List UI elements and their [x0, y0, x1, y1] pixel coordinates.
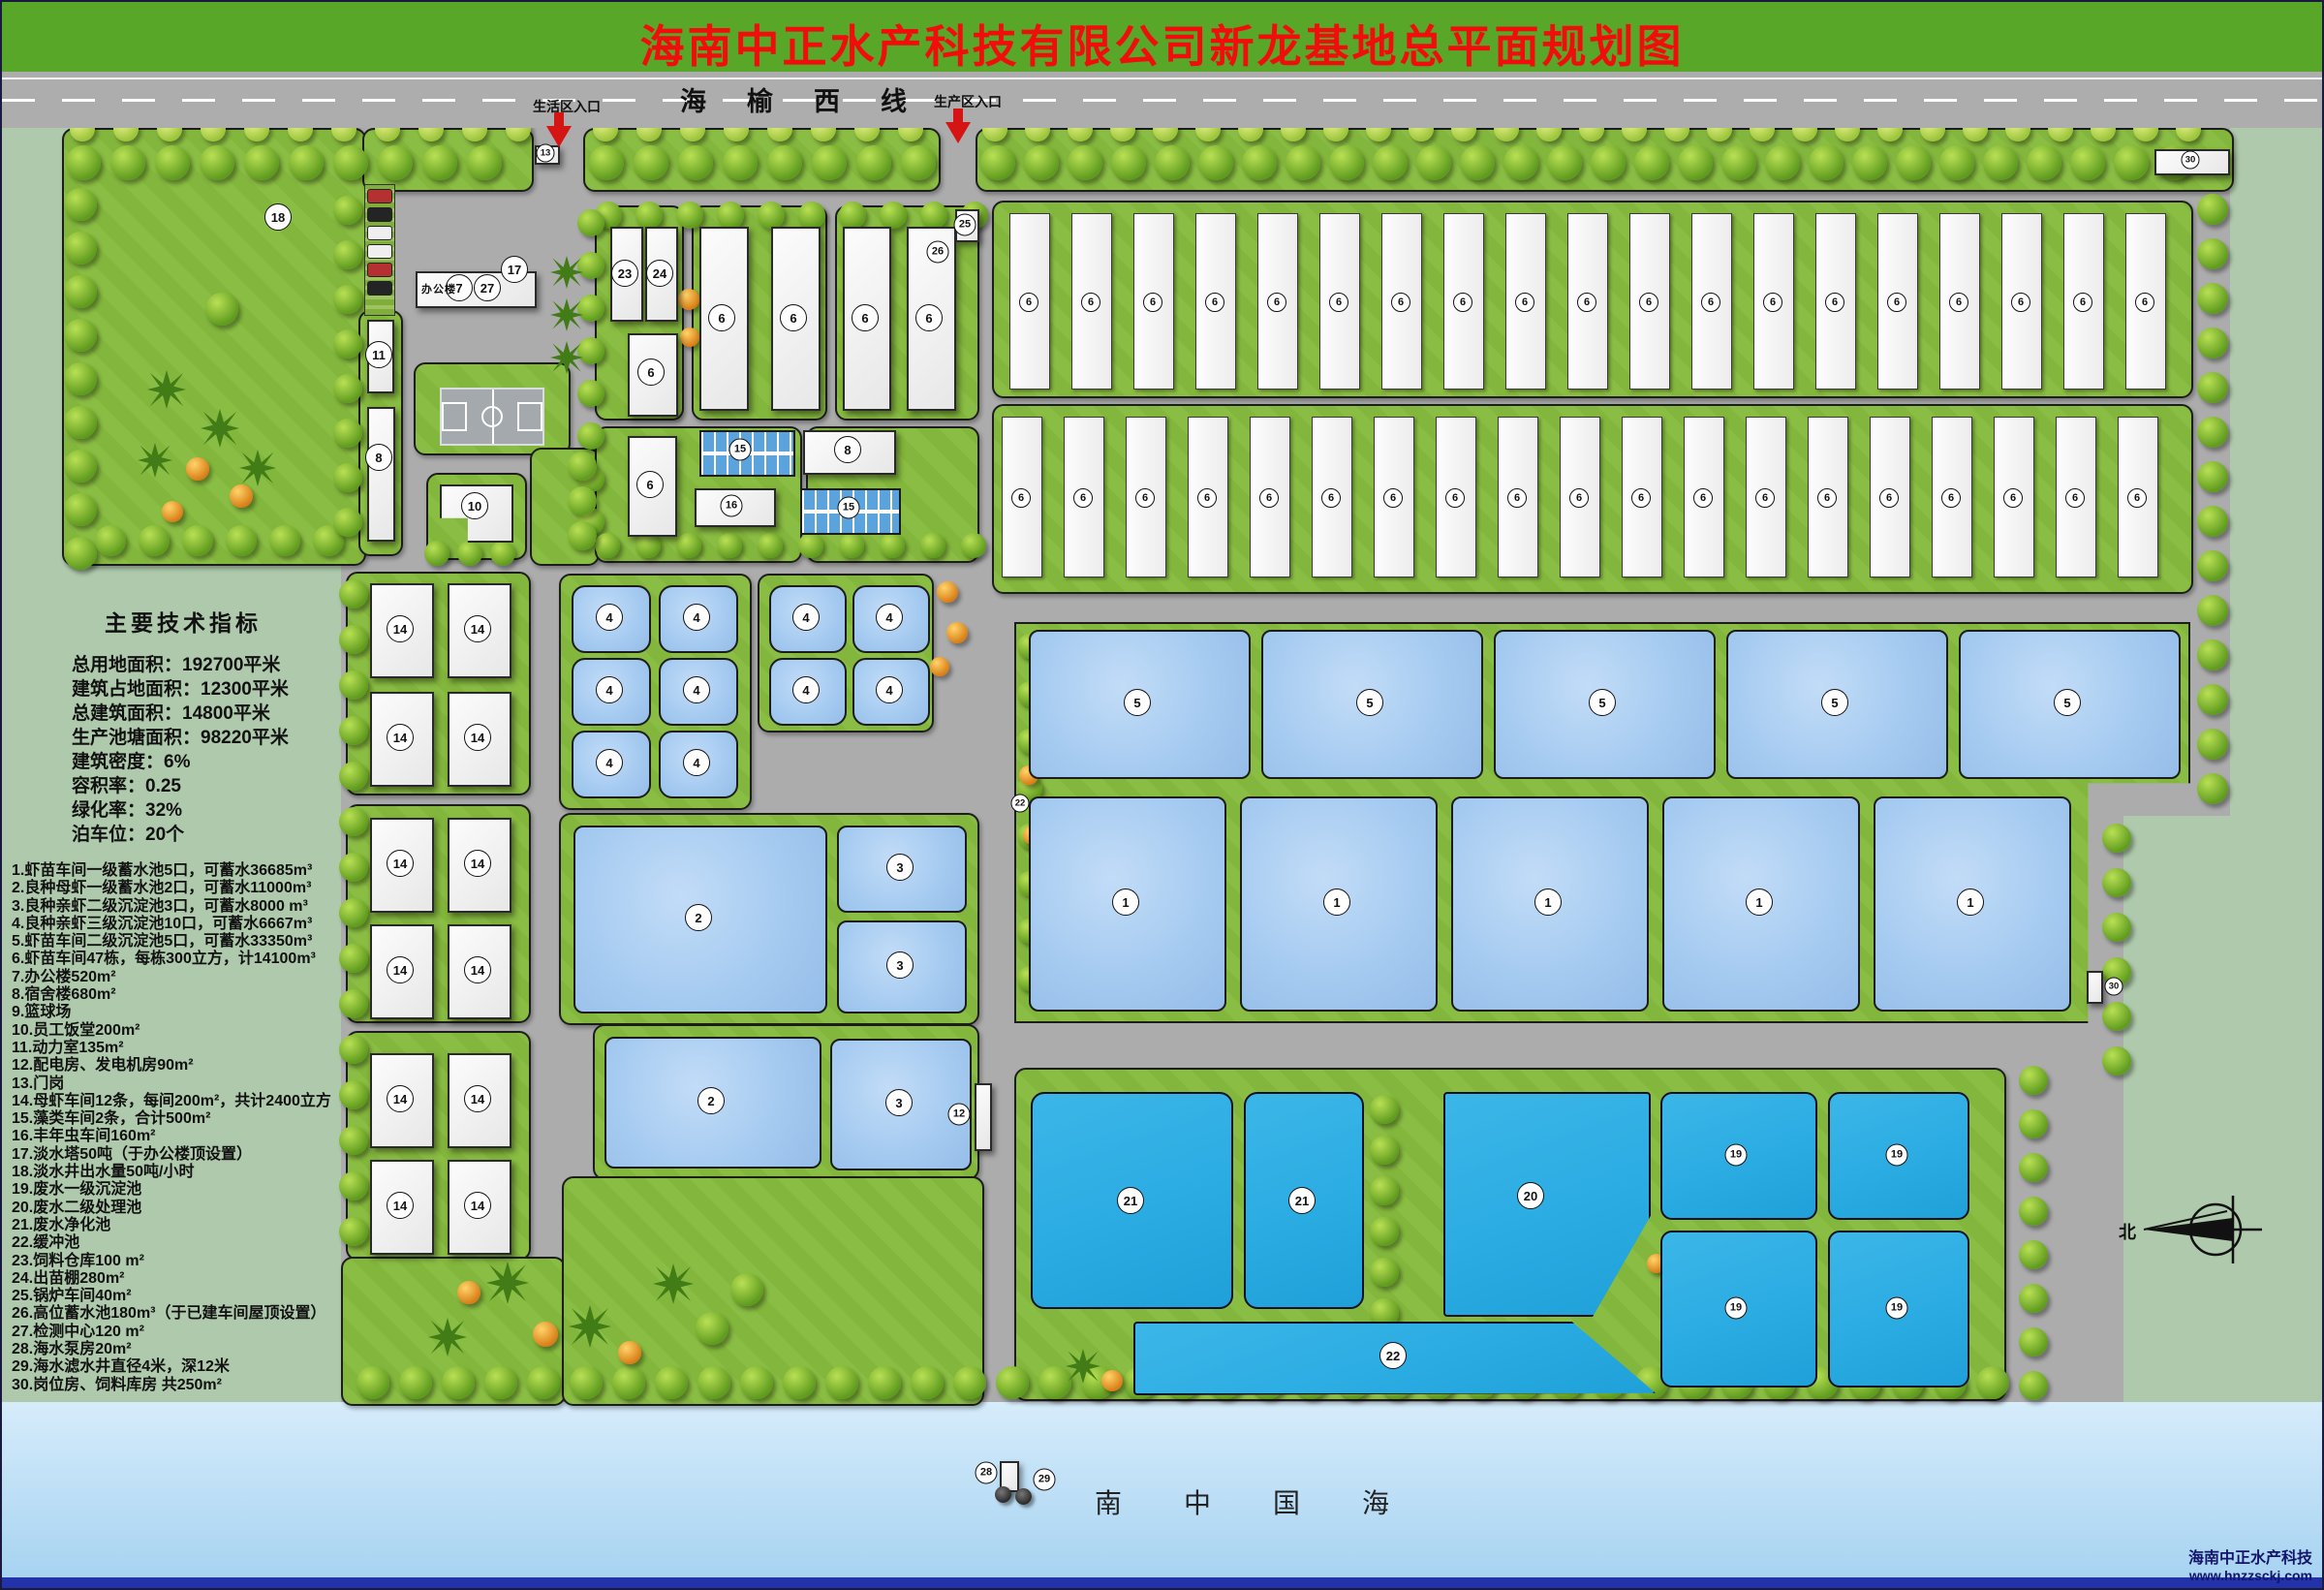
tech-indicator-line: 泊车位：20个 [72, 823, 362, 847]
entrance-arrow-life [546, 126, 572, 147]
legend-item: 2.良种母虾一级蓄水池2口，可蓄水11000m³ [12, 880, 346, 897]
tree-icon [1983, 145, 2018, 180]
map-label: 6 [1887, 293, 1906, 312]
tree-icon [1111, 145, 1146, 180]
tree-icon [758, 202, 785, 229]
parked-car-icon [367, 281, 392, 296]
site-plan: 南中国海 66666666666666666666666666666666666… [0, 0, 2324, 1590]
map-label: 26 [927, 241, 949, 264]
tree-icon [442, 1366, 475, 1399]
building [2087, 971, 2103, 1004]
map-label: 6 [1267, 293, 1286, 312]
green-block [62, 128, 366, 566]
technical-indicators-title: 主要技术指标 [105, 605, 362, 638]
map-label: 15 [838, 497, 860, 519]
tree-icon [697, 1366, 730, 1399]
tree-icon [880, 202, 907, 229]
tree-icon [244, 145, 279, 180]
map-label: 4 [683, 749, 710, 776]
map-label: 6 [1817, 488, 1837, 508]
map-label: 6 [2135, 293, 2154, 312]
tree-icon [2197, 595, 2228, 626]
tree-icon [333, 374, 362, 403]
legend-item: 27.检测中心120 m² [12, 1324, 346, 1341]
tree-icon [798, 202, 825, 229]
office-building-label: 办公楼 [421, 281, 456, 296]
tree-icon [64, 232, 97, 265]
palm-tree-icon [653, 1263, 694, 1304]
legend-item: 24.出苗棚280m² [12, 1270, 346, 1288]
entrance-arrow-production [945, 122, 971, 143]
tech-indicator-line: 容积率：0.25 [72, 774, 362, 798]
legend-item: 15.藻类车间2条，合计500m² [12, 1110, 346, 1128]
tree-icon [2197, 327, 2228, 359]
tree-icon [378, 145, 413, 180]
tree-icon [1721, 145, 1756, 180]
legend-item: 17.淡水塔50吨（于办公楼顶设置） [12, 1146, 346, 1164]
tree-icon [1024, 145, 1059, 180]
tree-icon [2070, 145, 2105, 180]
orange-tree-icon [930, 657, 949, 676]
tree-icon [2019, 1371, 2048, 1400]
tree-icon [839, 202, 866, 229]
tree-icon [996, 1366, 1029, 1399]
tree-icon [2019, 1284, 2048, 1313]
legend-item: 7.办公楼520m² [12, 969, 346, 986]
tree-icon [182, 525, 213, 556]
tree-icon [767, 145, 802, 180]
tree-icon [1373, 145, 1408, 180]
tree-icon [655, 1366, 688, 1399]
seawater-well-icon [1015, 1488, 1032, 1505]
tree-icon [333, 240, 362, 269]
tech-indicator-line: 总建筑面积：14800平米 [72, 701, 362, 726]
court-center-circle [481, 406, 503, 427]
tree-icon [2197, 283, 2228, 314]
tree-icon [568, 452, 597, 481]
map-label: 14 [387, 615, 414, 642]
tree-icon [1634, 145, 1669, 180]
palm-tree-icon [428, 1318, 467, 1356]
map-label: 6 [708, 304, 735, 331]
bush-tree-icon [205, 293, 238, 326]
basketball-court [440, 388, 544, 446]
tree-icon [95, 525, 126, 556]
entrance-arrow-life-stem [554, 112, 564, 126]
map-label: 14 [464, 850, 491, 877]
tree-icon [110, 145, 145, 180]
map-label: 5 [1821, 689, 1848, 716]
legend-item: 11.动力室135m² [12, 1040, 346, 1057]
tree-icon [1852, 145, 1887, 180]
map-label: 3 [886, 854, 914, 881]
orange-tree-icon [186, 457, 209, 481]
map-label: 3 [885, 1089, 913, 1116]
map-label: 21 [1117, 1187, 1144, 1214]
tree-icon [64, 319, 97, 352]
tree-icon [1370, 1176, 1399, 1205]
tree-icon [1896, 145, 1931, 180]
palm-tree-icon [239, 450, 276, 486]
map-label: 29 [1034, 1469, 1056, 1491]
map-label: 30 [2105, 978, 2123, 996]
legend-item: 6.虾苗车间47栋，每栋300立方，计14100m³ [12, 951, 346, 968]
tree-icon [2197, 372, 2228, 403]
map-label: 3 [886, 951, 914, 979]
map-label: 27 [474, 274, 501, 301]
legend-item: 25.锅炉车间40m² [12, 1288, 346, 1305]
tree-icon [155, 145, 190, 180]
tree-icon [64, 450, 97, 483]
tree-icon [577, 295, 604, 322]
map-label: 6 [2065, 488, 2085, 508]
tree-icon [1242, 145, 1277, 180]
tree-icon [64, 275, 97, 308]
map-label: 6 [1019, 293, 1038, 312]
palm-tree-icon [550, 341, 583, 374]
map-label: 6 [915, 304, 943, 331]
palm-tree-icon [550, 256, 583, 289]
tree-icon [920, 533, 945, 558]
tree-icon [2197, 773, 2228, 804]
parked-car-icon [367, 263, 392, 277]
map-label: 6 [636, 471, 664, 498]
map-label: 11 [365, 341, 392, 368]
watermark: 海南中正水产科技 www.hnzzsckj.com [2188, 1544, 2312, 1583]
map-label: 1 [1323, 889, 1350, 916]
palm-tree-icon [486, 1262, 529, 1304]
tree-icon [1976, 1366, 2009, 1399]
technical-indicator-lines: 总用地面积：192700平米建筑占地面积：12300平米总建筑面积：14800平… [72, 653, 362, 847]
tree-icon [333, 145, 368, 180]
entrance-arrow-production-stem [953, 109, 963, 122]
tree-icon [577, 380, 604, 407]
tree-icon [723, 145, 758, 180]
tree-icon [1068, 145, 1102, 180]
tree-icon [635, 202, 663, 229]
tree-icon [2197, 550, 2228, 581]
map-label: 6 [1507, 488, 1527, 508]
map-label: 6 [1515, 293, 1534, 312]
tech-indicator-line: 总用地面积：192700平米 [72, 653, 362, 677]
legend-item: 5.虾苗车间二级沉淀池5口，可蓄水33350m³ [12, 933, 346, 951]
tree-icon [783, 1366, 816, 1399]
map-label: 6 [1693, 488, 1713, 508]
tree-icon [333, 419, 362, 448]
tree-icon [980, 145, 1015, 180]
tree-icon [589, 145, 624, 180]
highway-name: 海榆西线 [680, 80, 947, 118]
tree-icon [920, 202, 947, 229]
tree-icon [911, 1366, 944, 1399]
map-label: 6 [1763, 293, 1782, 312]
tree-icon [2019, 1240, 2048, 1269]
orange-tree-icon [162, 501, 183, 522]
map-label: 6 [637, 359, 665, 386]
tree-icon [2197, 461, 2228, 492]
map-label: 2 [697, 1087, 725, 1114]
tree-icon [424, 541, 449, 566]
tree-icon [1678, 145, 1713, 180]
orange-tree-icon [230, 484, 253, 508]
map-label: 8 [365, 444, 392, 471]
tree-icon [798, 533, 823, 558]
tree-icon [2197, 729, 2228, 760]
tree-icon [812, 145, 847, 180]
tree-icon [676, 533, 701, 558]
legend-item: 29.海水滤水井直径4米，深12米 [12, 1358, 346, 1376]
palm-tree-icon [569, 1305, 611, 1348]
tree-icon [2019, 1327, 2048, 1356]
map-label: 12 [948, 1104, 971, 1126]
tree-icon [1155, 145, 1190, 180]
tech-indicator-line: 生产池塘面积：98220平米 [72, 726, 362, 750]
tree-icon [676, 202, 703, 229]
tree-icon [577, 337, 604, 364]
tree-icon [953, 1366, 986, 1399]
tree-icon [2197, 238, 2228, 269]
tree-icon [758, 533, 783, 558]
orange-tree-icon [946, 622, 968, 643]
tree-icon [1038, 1366, 1071, 1399]
building [975, 1083, 992, 1151]
map-label: 14 [387, 850, 414, 877]
map-label: 22 [1011, 795, 1030, 813]
tree-icon [825, 1366, 858, 1399]
orange-tree-icon [680, 327, 699, 347]
orange-tree-icon [618, 1341, 641, 1364]
tree-icon [717, 533, 742, 558]
map-label: 14 [464, 724, 491, 751]
legend-list: 1.虾苗车间一级蓄水池5口，可蓄水36685m³2.良种母虾一级蓄水池2口，可蓄… [12, 862, 346, 1394]
tree-icon [2027, 145, 2061, 180]
technical-indicators: 主要技术指标 总用地面积：192700平米建筑占地面积：12300平米总建筑面积… [72, 605, 362, 847]
map-label: 1 [1746, 889, 1773, 916]
watermark-url: www.hnzzsckj.com [2188, 1568, 2312, 1583]
map-label: 17 [501, 256, 528, 283]
tree-icon [1591, 145, 1626, 180]
tree-icon [64, 362, 97, 395]
map-label: 6 [1941, 488, 1961, 508]
map-label: 16 [721, 495, 743, 517]
map-label: 6 [1011, 488, 1031, 508]
legend-item: 10.员工饭堂200m² [12, 1022, 346, 1040]
tree-icon [333, 329, 362, 359]
tree-icon [577, 252, 604, 279]
palm-tree-icon [550, 298, 583, 331]
legend-item: 1.虾苗车间一级蓄水池5口，可蓄水36685m³ [12, 862, 346, 880]
bottom-bar [2, 1577, 2322, 1590]
map-label: 5 [1124, 689, 1151, 716]
legend-item: 19.废水一级沉淀池 [12, 1181, 346, 1199]
map-label: 4 [596, 749, 623, 776]
map-label: 23 [611, 260, 638, 287]
parked-car-icon [367, 207, 392, 222]
map-label: 4 [683, 676, 710, 703]
parked-car-icon [367, 226, 392, 240]
map-label: 6 [1631, 488, 1651, 508]
tree-icon [1370, 1217, 1399, 1246]
tree-icon [527, 1366, 560, 1399]
tree-icon [139, 525, 170, 556]
map-label: 4 [876, 604, 903, 631]
legend-item: 4.良种亲虾三级沉淀池10口，可蓄水6667m³ [12, 916, 346, 933]
tree-icon [2019, 1197, 2048, 1226]
map-label: 15 [729, 439, 752, 461]
legend-item: 28.海水泵房20m² [12, 1341, 346, 1358]
legend-item: 13.门岗 [12, 1076, 346, 1093]
tree-icon [1370, 1258, 1399, 1287]
map-label: 6 [1143, 293, 1162, 312]
tree-icon [2102, 1002, 2131, 1031]
map-label: 5 [1356, 689, 1383, 716]
tree-icon [1765, 145, 1800, 180]
map-label: 6 [2073, 293, 2092, 312]
map-label: 10 [461, 492, 488, 519]
bush-tree-icon [696, 1312, 728, 1345]
tech-indicator-line: 绿化率：32% [72, 798, 362, 823]
tree-icon [467, 145, 502, 180]
tree-icon [2019, 1109, 2048, 1138]
orange-tree-icon [457, 1281, 480, 1304]
tree-icon [226, 525, 257, 556]
tree-icon [1329, 145, 1364, 180]
map-label: 6 [1825, 293, 1844, 312]
tree-icon [880, 533, 905, 558]
map-label: 1 [1534, 889, 1562, 916]
legend-item: 9.篮球场 [12, 1004, 346, 1021]
map-label: 6 [1445, 488, 1465, 508]
tree-icon [1198, 145, 1233, 180]
tree-icon [64, 537, 97, 570]
map-label: 4 [792, 604, 820, 631]
map-label: 4 [876, 676, 903, 703]
road-center-dash [2, 99, 2322, 102]
map-label: 14 [387, 1085, 414, 1112]
tree-icon [595, 533, 620, 558]
page-title: 海南中正水产科技有限公司新龙基地总平面规划图 [2, 12, 2322, 76]
map-label: 8 [834, 436, 861, 463]
tree-icon [2102, 824, 2131, 853]
tree-icon [289, 145, 324, 180]
tree-icon [901, 145, 936, 180]
tree-icon [2102, 868, 2131, 897]
tree-icon [484, 1366, 517, 1399]
map-label: 5 [2054, 689, 2081, 716]
tree-icon [2019, 1153, 2048, 1182]
map-label: 6 [1135, 488, 1155, 508]
map-label: 6 [1073, 488, 1093, 508]
tree-icon [64, 493, 97, 526]
tree-icon [740, 1366, 773, 1399]
legend-item: 16.丰年虫车间160m² [12, 1128, 346, 1145]
tree-icon [868, 1366, 901, 1399]
tree-icon [2197, 506, 2228, 537]
map-label: 20 [1517, 1182, 1544, 1209]
entrance-label-production: 生产区入口 [934, 92, 1002, 111]
tree-icon [634, 145, 668, 180]
tree-icon [1370, 1095, 1399, 1124]
building [367, 407, 395, 542]
compass-icon [2119, 1186, 2274, 1273]
legend-item: 8.宿舍楼680m² [12, 986, 346, 1004]
map-label: 6 [1383, 488, 1403, 508]
map-label: 30 [2182, 151, 2200, 170]
tree-icon [568, 521, 597, 550]
map-label: 6 [1197, 488, 1217, 508]
tree-icon [577, 209, 604, 236]
map-label: 14 [387, 724, 414, 751]
map-label: 1 [1112, 889, 1139, 916]
map-label: 1 [1957, 889, 1984, 916]
palm-tree-icon [138, 443, 172, 478]
tech-indicator-line: 建筑占地面积：12300平米 [72, 677, 362, 701]
entrance-label-life: 生活区入口 [533, 97, 601, 116]
court-key-left [442, 402, 467, 431]
tree-icon [269, 525, 300, 556]
legend-item: 20.废水二级处理池 [12, 1200, 346, 1217]
tree-icon [64, 406, 97, 439]
orange-tree-icon [678, 289, 699, 310]
tree-icon [856, 145, 891, 180]
map-label: 6 [1329, 293, 1348, 312]
map-label: 14 [464, 1192, 491, 1219]
orange-tree-icon [937, 581, 958, 603]
map-label: 6 [852, 304, 879, 331]
map-label: 24 [646, 260, 673, 287]
tree-icon [2102, 913, 2131, 942]
tree-icon [2197, 194, 2228, 225]
tree-icon [422, 145, 457, 180]
map-label: 25 [954, 214, 976, 236]
tree-icon [678, 145, 713, 180]
tree-icon [2102, 1046, 2131, 1076]
map-label: 14 [464, 615, 491, 642]
tree-icon [568, 486, 597, 515]
tree-icon [333, 285, 362, 314]
legend-item: 30.岗位房、饲料库房 共250m² [12, 1377, 346, 1394]
tree-icon [961, 533, 986, 558]
tree-icon [333, 196, 362, 225]
map-label: 6 [1391, 293, 1410, 312]
map-label: 2 [685, 904, 712, 931]
watermark-company: 海南中正水产科技 [2188, 1544, 2312, 1568]
tree-icon [717, 202, 744, 229]
map-label: 6 [1639, 293, 1658, 312]
court-key-right [517, 402, 542, 431]
map-label: 4 [683, 604, 710, 631]
legend-item: 23.饲料仓库100 m² [12, 1253, 346, 1270]
legend-item: 22.缓冲池 [12, 1234, 346, 1252]
tree-icon [457, 541, 482, 566]
road-edge-line [2, 78, 2322, 79]
title-band: 海南中正水产科技有限公司新龙基地总平面规划图 [2, 2, 2322, 72]
map-label: 6 [2127, 488, 2147, 508]
map-label: 6 [1081, 293, 1100, 312]
tree-icon [66, 145, 101, 180]
legend-item: 14.母虾车间12条，每间200m²，共计2400立方 [12, 1093, 346, 1110]
orange-tree-icon [533, 1322, 558, 1347]
tree-icon [2197, 684, 2228, 715]
map-label: 6 [1259, 488, 1279, 508]
map-label: 4 [596, 604, 623, 631]
orange-tree-icon [1101, 1370, 1123, 1391]
map-label: 6 [2011, 293, 2030, 312]
tree-icon [839, 533, 864, 558]
tree-icon [1939, 145, 1974, 180]
map-label: 6 [1577, 293, 1596, 312]
map-label: 6 [1879, 488, 1899, 508]
